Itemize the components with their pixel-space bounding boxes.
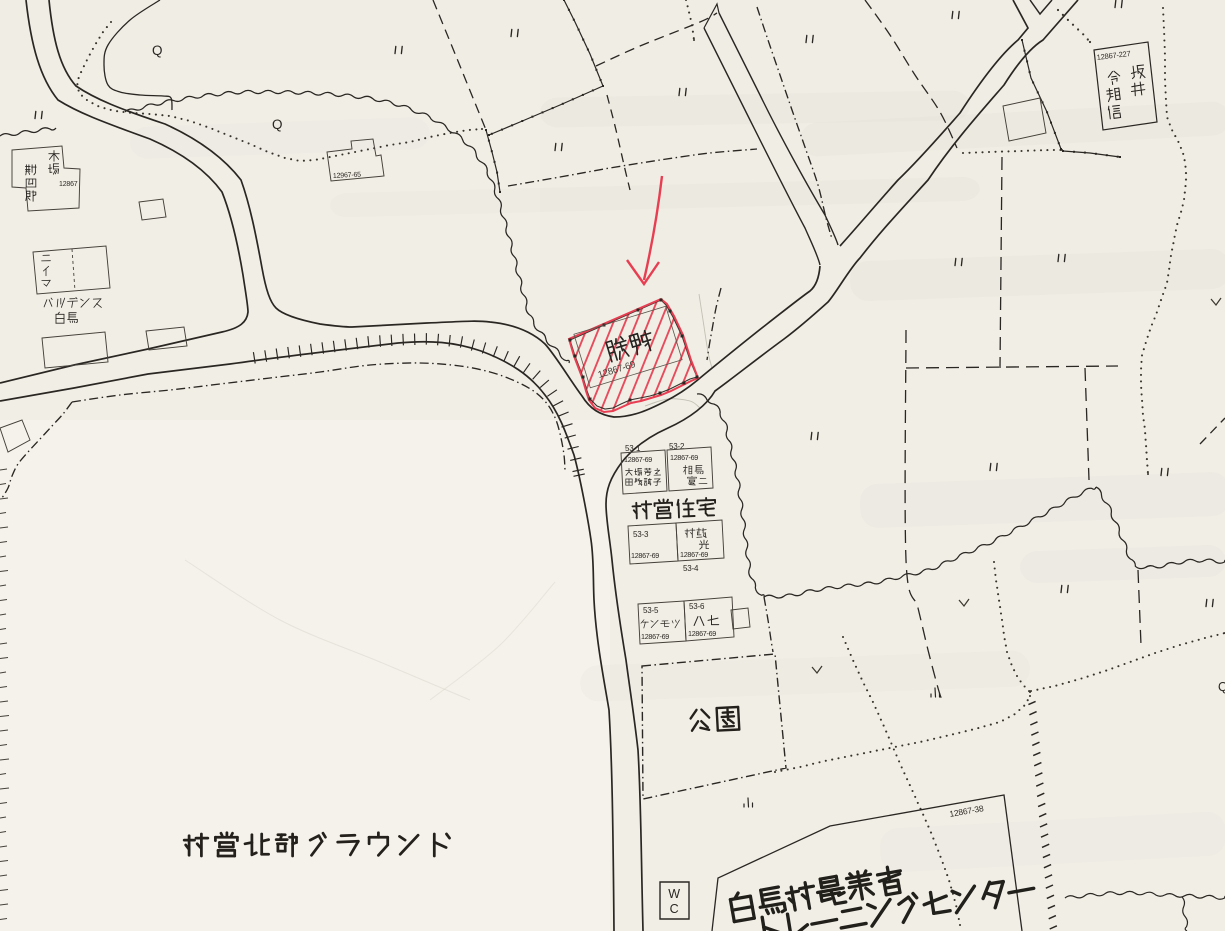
svg-text:12867-69: 12867-69 (641, 632, 669, 641)
svg-text:12867: 12867 (59, 181, 78, 188)
svg-text:53-4: 53-4 (683, 564, 699, 573)
svg-text:53-5: 53-5 (643, 606, 659, 615)
svg-text:12867-69: 12867-69 (624, 455, 652, 464)
svg-text:Q: Q (1218, 680, 1225, 694)
svg-text:12867-69: 12867-69 (680, 550, 708, 559)
svg-text:C: C (670, 902, 679, 916)
svg-text:53-3: 53-3 (633, 530, 649, 539)
svg-text:12967-65: 12967-65 (333, 172, 362, 180)
svg-text:12867-69: 12867-69 (688, 629, 716, 638)
svg-text:53-1: 53-1 (625, 444, 641, 453)
svg-text:W: W (668, 887, 680, 901)
svg-text:53-2: 53-2 (669, 442, 685, 451)
svg-text:Q: Q (272, 117, 282, 132)
svg-text:Q: Q (152, 43, 162, 58)
svg-text:53-6: 53-6 (689, 602, 705, 611)
svg-text:12867-69: 12867-69 (631, 551, 659, 560)
svg-text:12867-69: 12867-69 (670, 453, 698, 462)
